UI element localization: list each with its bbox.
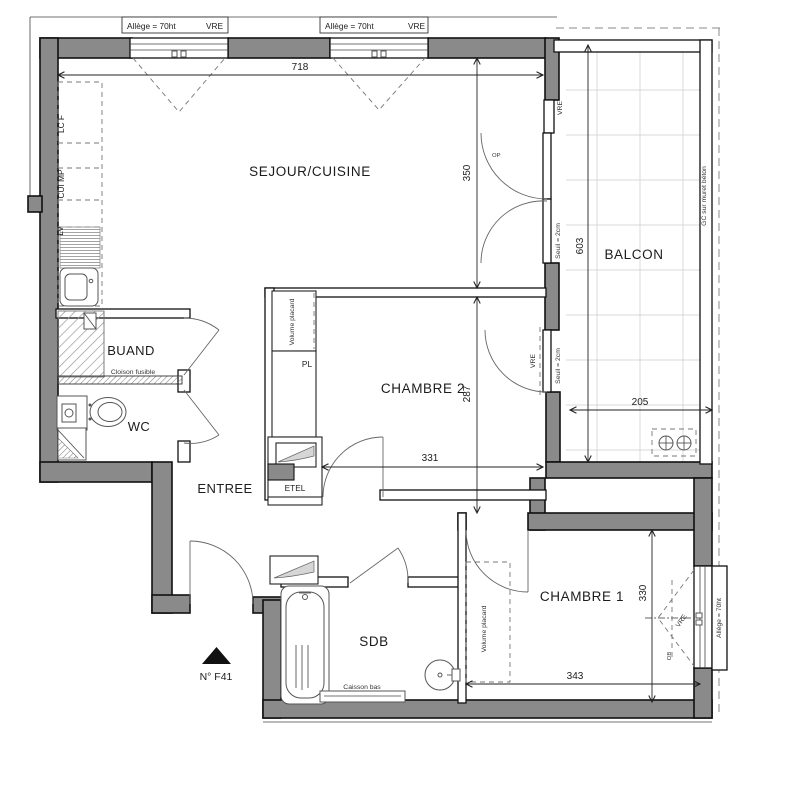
caisson-bas-cabinet (320, 691, 405, 702)
seuil-label-1: Seuil = 2cm (555, 223, 562, 259)
vre-label-balcony-door: VRE (557, 101, 564, 115)
dim-chambre1-height: 330 (638, 584, 649, 601)
floor-plan-drawing: Allège = 70ht VRE Allège = 70ht VRE (0, 0, 796, 800)
entry-door (190, 541, 253, 604)
vre-label-1: VRE (206, 21, 224, 31)
vre-label-2: VRE (408, 21, 426, 31)
dim-chambre2-height: 287 (462, 385, 473, 402)
wc-door (184, 390, 219, 443)
ob-label: OB (667, 652, 673, 661)
bathtub (281, 586, 329, 704)
room-label-chambre2: CHAMBRE 2 (381, 381, 465, 396)
entrance-arrow (202, 647, 231, 664)
pl-label: PL (302, 359, 313, 369)
lcf-label: LC F (56, 115, 66, 133)
allege-label-2: Allège = 70ht (325, 21, 374, 31)
room-label-sejour: SEJOUR/CUISINE (249, 164, 371, 179)
window-label-band-2: Allège = 70ht VRE (320, 17, 428, 33)
chambre1-placard (466, 562, 510, 682)
etel-label: ETEL (285, 483, 306, 493)
room-label-balcon: BALCON (604, 247, 663, 262)
allege-label-chambre1: Allège = 70ht (716, 598, 723, 638)
dim-chambre1-width: 343 (567, 671, 584, 682)
toilet (89, 398, 127, 427)
unit-number-label: N° F41 (200, 671, 233, 683)
volume-placard-chambre2: Volume placard (289, 298, 296, 345)
window-sejour-2 (330, 38, 428, 58)
etel-closet (268, 437, 322, 505)
allege-label-1: Allège = 70ht (127, 21, 176, 31)
window-sejour-1 (130, 38, 228, 58)
window-opening-dashes (133, 58, 425, 112)
wc-fittings (57, 396, 126, 460)
dim-sejour-width: 718 (292, 62, 309, 73)
dim-chambre2-width: 331 (422, 453, 439, 464)
lv-label: LV (55, 226, 65, 236)
vre-label-chambre1-window: VRE (675, 613, 689, 629)
dim-balcon-width: 205 (632, 397, 649, 408)
dim-balcon-height: 603 (575, 237, 586, 254)
vre-label-chambre2-door: VRE (530, 354, 537, 368)
kitchen-sink (60, 268, 98, 306)
cloison-fusible-partition (58, 376, 182, 384)
room-label-chambre1: CHAMBRE 1 (540, 589, 624, 604)
balcony-drains (652, 429, 696, 456)
cui-mp-label: CUI MP (56, 169, 66, 199)
window-label-band-1: Allège = 70ht VRE (122, 17, 228, 33)
room-label-wc: WC (128, 419, 150, 434)
dim-sejour-height: 350 (462, 164, 473, 181)
room-label-entree: ENTREE (197, 481, 252, 496)
chambre1-door (466, 530, 528, 592)
room-label-sdb: SDB (359, 634, 389, 649)
op-label: OP (492, 153, 501, 159)
buanderie-door (184, 318, 219, 375)
sdb-sink (425, 660, 460, 690)
caisson-bas-label: Caisson bas (343, 684, 381, 691)
gc-muret-label: GC sur muret béton (701, 166, 708, 226)
volume-placard-chambre1: Volume placard (481, 605, 488, 652)
floor-plan-sheet: Allège = 70ht VRE Allège = 70ht VRE (0, 0, 796, 800)
room-label-buanderie: BUAND (107, 343, 155, 358)
hall-shelf-box (270, 556, 318, 584)
dishwasher (60, 227, 100, 268)
sdb-door (350, 548, 408, 583)
chambre2-balcony-door (485, 327, 551, 397)
duct-shaft (58, 428, 86, 460)
seuil-label-2: Seuil = 2cm (555, 348, 562, 384)
cloison-fusible-label: Cloison fusible (111, 369, 155, 376)
